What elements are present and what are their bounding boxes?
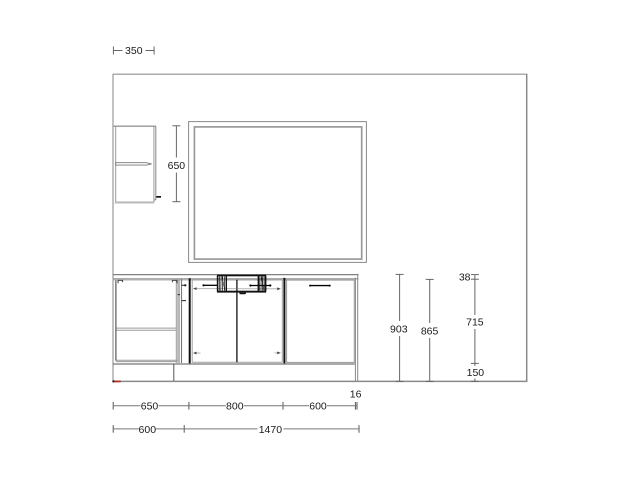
- svg-text:1470: 1470: [259, 424, 283, 436]
- svg-text:865: 865: [421, 325, 439, 337]
- svg-text:350: 350: [125, 45, 143, 57]
- svg-text:650: 650: [168, 160, 186, 172]
- svg-text:800: 800: [226, 401, 244, 413]
- svg-text:600: 600: [139, 424, 157, 436]
- svg-text:150: 150: [467, 367, 485, 379]
- svg-text:903: 903: [390, 323, 408, 335]
- svg-text:650: 650: [141, 401, 159, 413]
- svg-text:715: 715: [466, 317, 484, 329]
- svg-text:16: 16: [350, 388, 362, 400]
- svg-text:38: 38: [459, 271, 471, 283]
- svg-text:600: 600: [309, 401, 327, 413]
